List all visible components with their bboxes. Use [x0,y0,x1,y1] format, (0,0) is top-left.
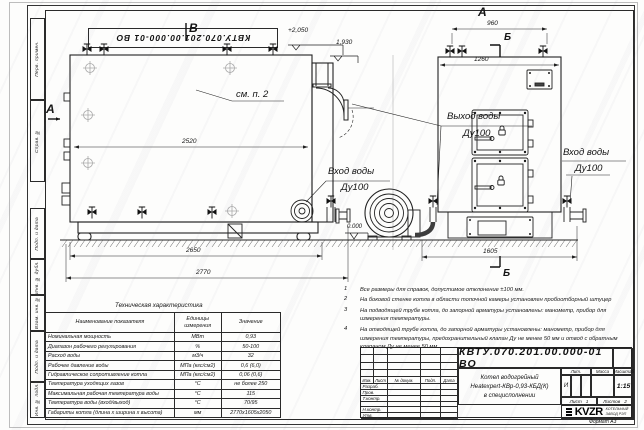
table-row: Температура воды (вход/выход)°С70/95 [46,398,280,407]
front-right-pipe [564,207,586,222]
change-table-spare [361,348,458,377]
spare-cell [374,370,388,377]
note-number: 3 [344,307,360,325]
view-a-side-label: А [46,103,55,115]
company-name: КОТЕЛЬНЫЙ ЗАВОД РЭП [606,407,629,416]
outlet-dn-label: Ду100 [463,129,490,139]
note-number: 2 [344,296,360,305]
product-line-3: в специсполнении [484,391,536,400]
table-cell: Гидравлическое сопротивление котла [46,371,174,379]
table-cell: Номинальная мощность [46,333,174,341]
signature-empty-cell [421,413,441,419]
tech-table: Наименование показателяЕдиницы измерения… [45,312,281,418]
signature-role-label: Утв. [361,413,388,419]
table-cell: 2770х1605х2050 [221,409,281,417]
table-cell: мм [174,409,221,417]
table-cell: % [174,342,221,350]
dim-2520: 2520 [182,139,196,146]
note-item: 2На боковой стенке котла в области топоч… [344,296,628,305]
sheets-cell: Листов 2 [597,397,633,405]
sheet-cell: Лист 1 [561,397,597,405]
crosshair-marks [81,61,239,218]
table-cell: °С [174,399,221,407]
doc-number-spare-cell [613,348,633,368]
change-col-header: Изм. [361,377,374,384]
dim-2770: 2770 [196,270,210,277]
change-table-header: Изм.Лист№ докум.Подп.Дата [361,377,458,384]
table-cell: МВт [174,333,221,341]
signature-empty-cell [388,413,421,419]
outlet-elbow [313,63,374,138]
lit-cell-2 [571,375,581,397]
spare-cell [388,355,421,362]
view-a-top-label: А [478,6,487,18]
view-b-label: В [189,22,198,34]
table-cell: МПа (кгс/см2) [174,361,221,369]
table-cell: Наименование показателя [46,313,174,332]
kvzr-logo: KVZR [575,406,603,418]
ground-hatch [62,240,577,247]
side-view-foot [297,233,310,240]
spare-cell [374,348,388,355]
mass-header: Масса [591,368,614,375]
table-cell: Рабочее давление воды [46,361,174,369]
elevation-top: +2,050 [288,28,308,35]
table-cell: Температура воды (вход/выход) [46,399,174,407]
rear-stub [327,207,350,223]
table-row: Расход водым3/ч32 [46,351,280,360]
spare-cell [374,363,388,370]
table-cell: Расход воды [46,352,174,360]
product-name-cell: Котел водогрейный Heatexpert-КВр-0,93-КБ… [458,368,561,405]
dim-1260: 1260 [474,57,488,64]
table-cell: Диапазон рабочего регулирования [46,342,174,350]
table-row: Габариты котла (длина х ширина х высота)… [46,408,280,417]
change-col-header: № докум. [388,377,421,384]
dim-960: 960 [487,21,498,28]
note-number: 1 [344,286,360,295]
format-note: Формат А3 [589,420,616,425]
inlet-front-dn-label: Ду100 [575,164,602,174]
spare-cell [441,355,458,362]
table-cell: 32 [221,352,281,360]
spare-cell [388,370,421,377]
see-item-note: см. п. 2 [236,90,268,100]
spare-cell [441,370,458,377]
note-text: На боковой стенке котла в области топочн… [360,296,628,305]
note-item: 1Все размеры для справок, допустимое отк… [344,286,628,295]
spare-cell [421,348,441,355]
table-cell: Единицы измерения [174,313,221,332]
table-row: Диапазон рабочего регулирования%50-100 [46,341,280,350]
table-cell: 0,6 (6,0) [221,361,281,369]
drawing-sheet: Перв. примен.Справ. №Подп. и датаИнв. № … [0,0,644,430]
section-b-bottom-label: Б [503,269,510,279]
outlet-label: Выход воды [447,112,500,122]
section-b-top-label: Б [504,33,511,43]
spare-cell [361,355,374,362]
spare-cell [421,355,441,362]
spare-cell [421,370,441,377]
table-cell: м3/ч [174,352,221,360]
front-view [415,57,586,238]
front-left-pipe [415,207,436,235]
notes-list: 1Все размеры для справок, допустимое отк… [344,286,628,354]
table-cell: Значение [221,313,281,332]
change-col-header: Лист [374,377,388,384]
side-view-base [78,222,318,233]
mass-value [591,375,614,397]
inlet-front-label: Вход воды [563,148,609,158]
inlet-side-dn-label: Ду100 [341,183,368,193]
table-cell: 0,06 (0,6) [221,371,281,379]
table-row: Наименование показателяЕдиницы измерения… [46,313,280,332]
lit-value: И [561,375,571,397]
title-block: Изм.Лист№ докум.Подп.Дата Разраб.Пров.Т.… [360,347,632,418]
signature-empty-cell [441,413,458,419]
table-cell: не более 250 [221,380,281,388]
table-row: Температура уходящих газов°Сне более 250 [46,379,280,388]
dim-2650: 2650 [186,248,200,255]
sheet-value: 1 [586,399,589,404]
table-cell: °С [174,390,221,398]
dim-1605: 1605 [483,249,497,256]
padlock-icon [498,126,505,185]
door-bolts [469,72,550,235]
elevation-zero: 0.000 [347,224,362,230]
doc-number: КВТУ.070.201.00.000-01 ВО [459,346,612,370]
spare-cell [361,363,374,370]
scale-value: 1:15 [614,375,633,397]
kvzr-logo-bars-icon [566,408,572,416]
spare-cell [388,348,421,355]
spare-cell [374,355,388,362]
scale-header: Масштаб [614,368,633,375]
note-text: Все размеры для справок, допустимое откл… [360,286,628,295]
table-cell: Габариты котла (длина х ширина х высота) [46,409,174,417]
table-cell: 115 [221,390,281,398]
table-cell: Температура уходящих газов [46,380,174,388]
side-view [62,55,374,240]
table-row: Гидравлическое сопротивление котлаМПа (к… [46,370,280,379]
fan [365,189,420,240]
table-row: Максимальная рабочая температура воды°С1… [46,389,280,398]
spare-cell [361,348,374,355]
table-cell: МПа (кгс/см2) [174,371,221,379]
product-line-1: Котел водогрейный [481,373,539,382]
side-view-valves [83,44,336,219]
note-number: 4 [344,326,360,352]
table-row: Номинальная мощностьМВт0,93 [46,332,280,341]
spare-cell [361,370,374,377]
doc-number-cell: КВТУ.070.201.00.000-01 ВО [458,348,613,368]
note-item: 3На подводящей трубе котла, до запорной … [344,307,628,325]
sheets-value: 2 [624,399,627,404]
spare-cell [388,363,421,370]
elevation-mid: 1,930 [336,40,352,47]
lit-header: Лит. [561,368,591,375]
product-line-2: Heatexpert-КВр-0,93-КБД(К) [470,382,548,391]
sheet-label: Лист [570,399,582,404]
inlet-side-label: Вход воды [328,167,374,177]
company-cell: KVZR КОТЕЛЬНЫЙ ЗАВОД РЭП [561,405,633,419]
tech-table-title: Техническая характеристика [115,303,203,309]
table-cell: 70/95 [221,399,281,407]
table-cell: 50-100 [221,342,281,350]
signature-rows: Разраб.Пров.Т.контр.Н.контр.Утв. [361,384,458,419]
spare-cell [441,348,458,355]
sheets-label: Листов [603,399,620,404]
front-base [448,212,552,238]
note-text: На подводящей трубе котла, до запорной а… [360,307,628,325]
table-cell: °С [174,380,221,388]
side-view-lugs [62,93,70,205]
spare-cell [421,363,441,370]
lit-cell-3 [581,375,591,397]
table-cell: Максимальная рабочая температура воды [46,390,174,398]
table-cell: 0,93 [221,333,281,341]
table-row: Рабочее давление водыМПа (кгс/см2)0,6 (6… [46,360,280,369]
change-col-header: Дата [441,377,458,384]
company-line-2: ЗАВОД РЭП [606,412,629,417]
inlet-flange-side [291,200,313,222]
spare-cell [441,363,458,370]
side-view-jack [228,224,242,238]
side-view-foot [78,233,91,240]
change-col-header: Подп. [421,377,441,384]
